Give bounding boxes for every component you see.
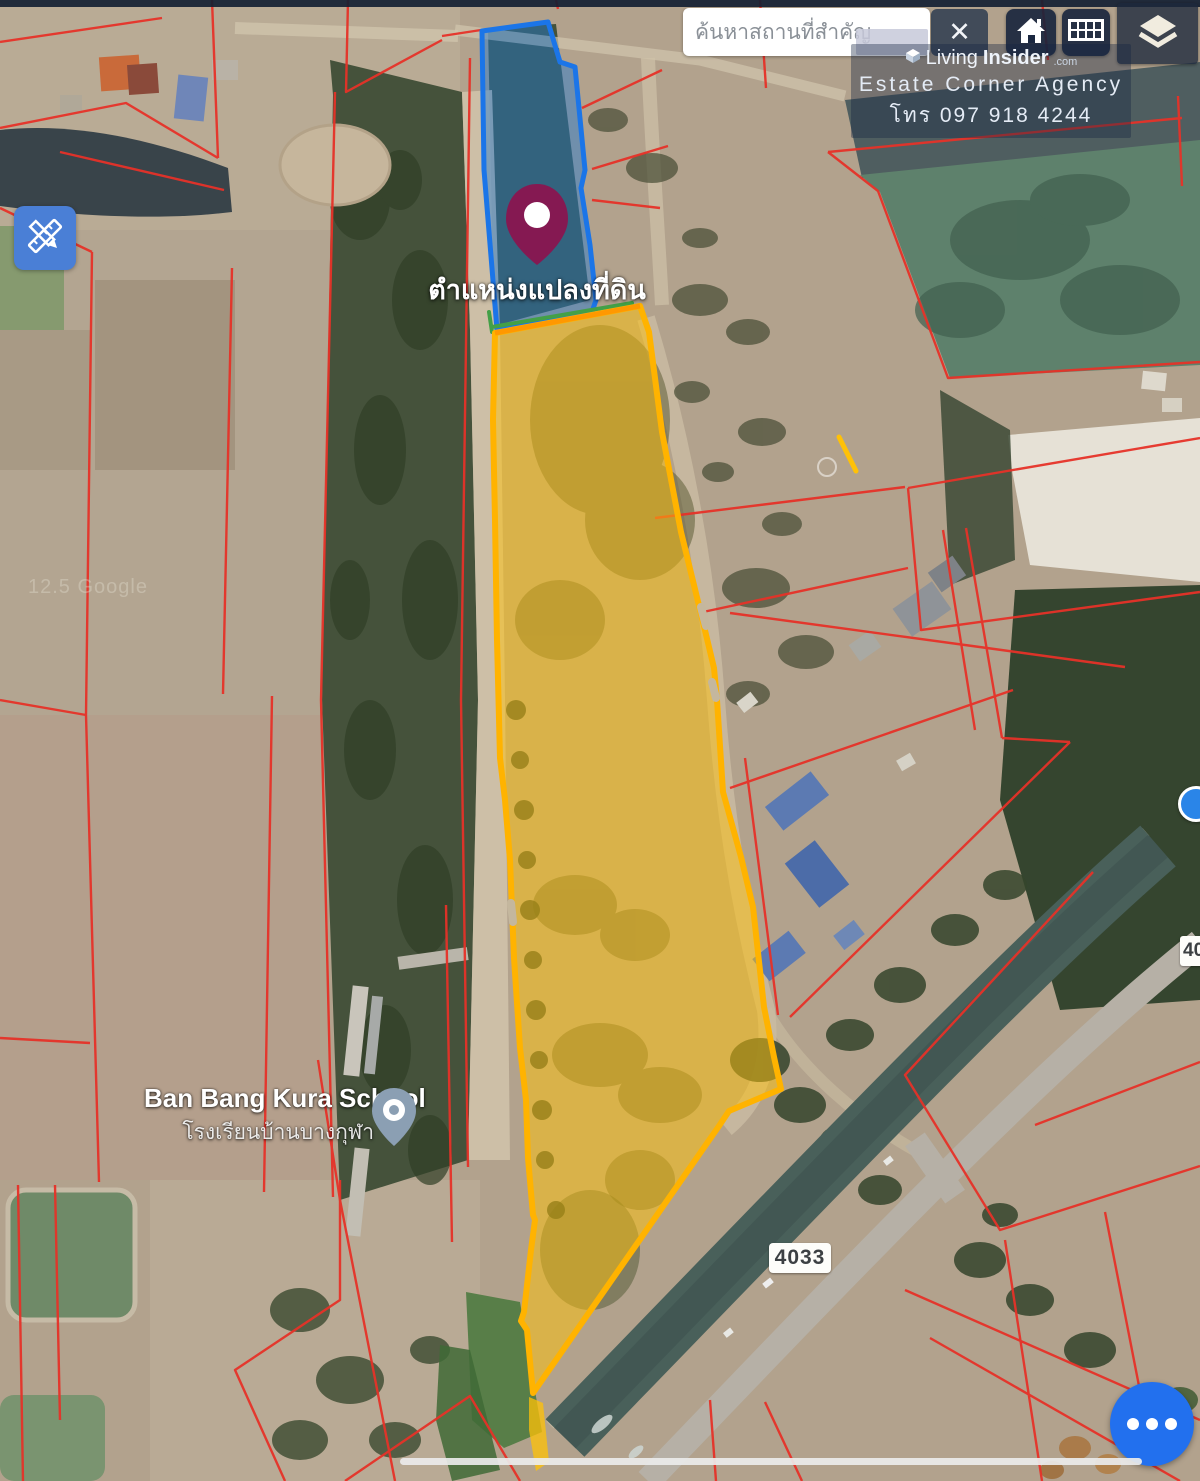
pencil-ruler-icon [22, 213, 68, 264]
search-placeholder: ค้นหาสถานที่สำคัญ [695, 16, 871, 49]
school-name-th: โรงเรียนบ้านบางกุฬา [144, 1116, 374, 1149]
more-dots-icon [1127, 1418, 1139, 1430]
agency-watermark: LivingInsider.com Estate Corner Agency โ… [851, 44, 1131, 138]
road-shield-partial: 40 [1180, 936, 1200, 966]
plot-pin-icon[interactable] [500, 181, 575, 276]
school-marker-icon[interactable] [369, 1086, 419, 1155]
grid-icon [1068, 19, 1104, 46]
agency-phone: โทร 097 918 4244 [851, 99, 1131, 132]
plot-location-label: ตำแหน่งแปลงที่ดิน [428, 268, 646, 311]
top-status-strip [0, 0, 1200, 7]
bottom-progress-bar [400, 1458, 1142, 1465]
brand-cube-icon [905, 47, 921, 70]
brand-tld: .com [1054, 56, 1078, 68]
agency-name: Estate Corner Agency [851, 73, 1131, 97]
map-screen: 12.5 Google ตำแหน่งแปลงที่ดิน Ban Bang K… [0, 0, 1200, 1481]
more-options-fab[interactable] [1110, 1382, 1194, 1466]
satellite-map[interactable] [0, 0, 1200, 1481]
edit-tool-button[interactable] [14, 206, 76, 270]
brand-word2: Insider [983, 47, 1049, 70]
brand-word1: Living [926, 47, 978, 70]
school-label: Ban Bang Kura School โรงเรียนบ้านบางกุฬา [144, 1083, 374, 1149]
road-shield-4033: 4033 [769, 1243, 831, 1273]
layers-icon [1137, 9, 1179, 58]
school-name-en: Ban Bang Kura School [144, 1083, 374, 1114]
map-attribution-faint: 12.5 Google [28, 576, 148, 599]
